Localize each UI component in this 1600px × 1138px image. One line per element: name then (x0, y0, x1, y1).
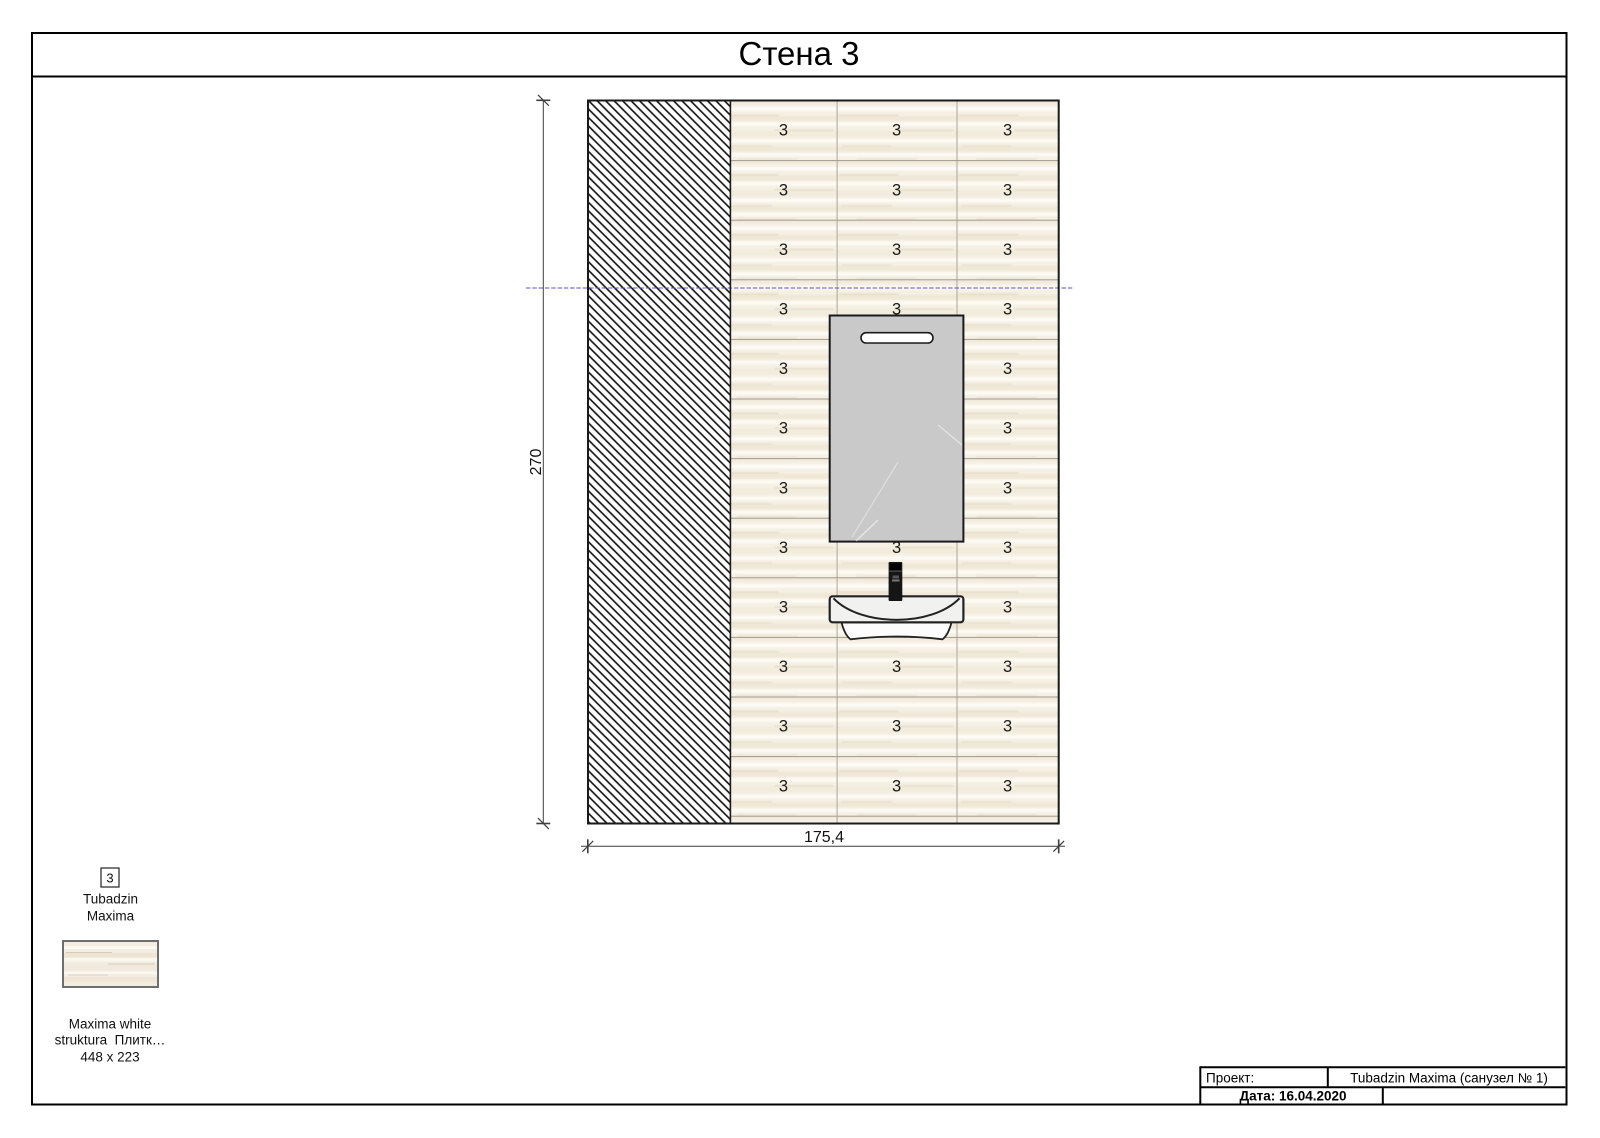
svg-text:3: 3 (779, 718, 788, 736)
svg-text:3: 3 (892, 241, 901, 259)
svg-text:3: 3 (1003, 718, 1012, 736)
svg-text:270: 270 (528, 449, 545, 476)
svg-text:3: 3 (779, 777, 788, 795)
svg-text:3: 3 (892, 658, 901, 676)
svg-text:3: 3 (1003, 658, 1012, 676)
svg-text:3: 3 (892, 718, 901, 736)
svg-text:3: 3 (779, 301, 788, 319)
svg-text:Maxima white: Maxima white (69, 1017, 152, 1032)
svg-text:3: 3 (779, 658, 788, 676)
svg-text:Tubadzin Maxima (санузел № 1): Tubadzin Maxima (санузел № 1) (1350, 1071, 1548, 1086)
svg-text:3: 3 (1003, 181, 1012, 199)
svg-text:Проект:: Проект: (1206, 1071, 1254, 1086)
svg-text:3: 3 (1003, 360, 1012, 378)
svg-text:3: 3 (892, 777, 901, 795)
svg-text:struktura Плитк…: struktura Плитк… (55, 1033, 166, 1048)
svg-text:Стена 3: Стена 3 (738, 35, 859, 72)
svg-text:175,4: 175,4 (804, 829, 844, 846)
svg-text:3: 3 (779, 181, 788, 199)
svg-text:3: 3 (1003, 479, 1012, 497)
svg-text:3: 3 (1003, 122, 1012, 140)
svg-text:3: 3 (1003, 599, 1012, 617)
svg-text:Дата: 16.04.2020: Дата: 16.04.2020 (1239, 1089, 1346, 1104)
svg-text:3: 3 (1003, 777, 1012, 795)
svg-text:3: 3 (779, 420, 788, 438)
svg-text:3: 3 (779, 599, 788, 617)
svg-text:Tubadzin: Tubadzin (83, 892, 138, 907)
svg-text:3: 3 (779, 241, 788, 259)
svg-text:3: 3 (892, 122, 901, 140)
svg-text:3: 3 (779, 122, 788, 140)
svg-text:3: 3 (1003, 420, 1012, 438)
svg-text:3: 3 (892, 181, 901, 199)
svg-text:Maxima: Maxima (87, 909, 135, 924)
svg-text:3: 3 (779, 479, 788, 497)
svg-text:3: 3 (1003, 539, 1012, 557)
svg-text:3: 3 (779, 539, 788, 557)
svg-text:3: 3 (1003, 241, 1012, 259)
svg-text:3: 3 (106, 871, 113, 886)
svg-text:448 x 223: 448 x 223 (80, 1050, 139, 1065)
svg-text:3: 3 (779, 360, 788, 378)
svg-text:3: 3 (1003, 301, 1012, 319)
